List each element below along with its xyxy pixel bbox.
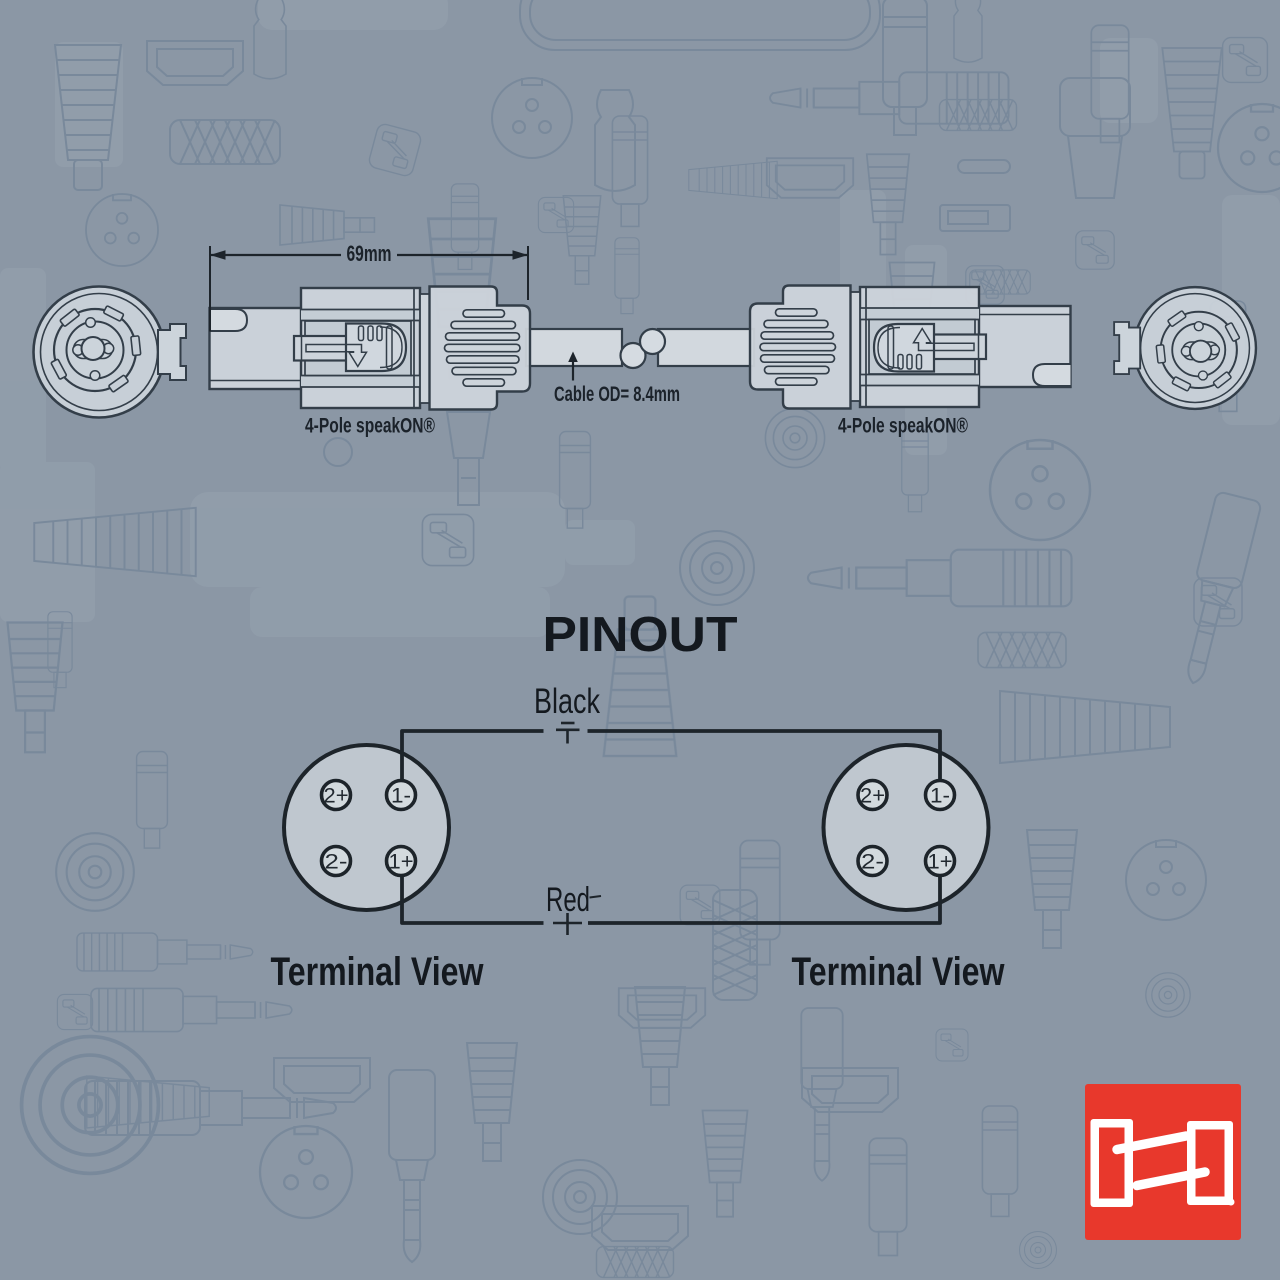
svg-text:PINOUT: PINOUT	[543, 608, 738, 662]
svg-text:4-Pole speakON®: 4-Pole speakON®	[838, 414, 968, 438]
svg-text:1+: 1+	[389, 851, 414, 874]
svg-text:1-: 1-	[391, 785, 411, 808]
svg-text:2+: 2+	[324, 785, 349, 808]
svg-text:Red: Red	[546, 881, 590, 919]
svg-text:Cable OD= 8.4mm: Cable OD= 8.4mm	[554, 382, 680, 406]
svg-text:1+: 1+	[928, 851, 953, 874]
svg-text:69mm: 69mm	[347, 241, 392, 266]
svg-text:1-: 1-	[930, 785, 950, 808]
svg-text:2-: 2-	[325, 851, 348, 874]
svg-text:Black: Black	[534, 682, 600, 721]
svg-text:4-Pole speakON®: 4-Pole speakON®	[305, 414, 435, 438]
svg-text:Terminal View: Terminal View	[271, 950, 484, 994]
svg-text:Terminal View: Terminal View	[792, 950, 1005, 994]
svg-text:2-: 2-	[861, 851, 884, 874]
svg-text:2+: 2+	[860, 785, 885, 808]
